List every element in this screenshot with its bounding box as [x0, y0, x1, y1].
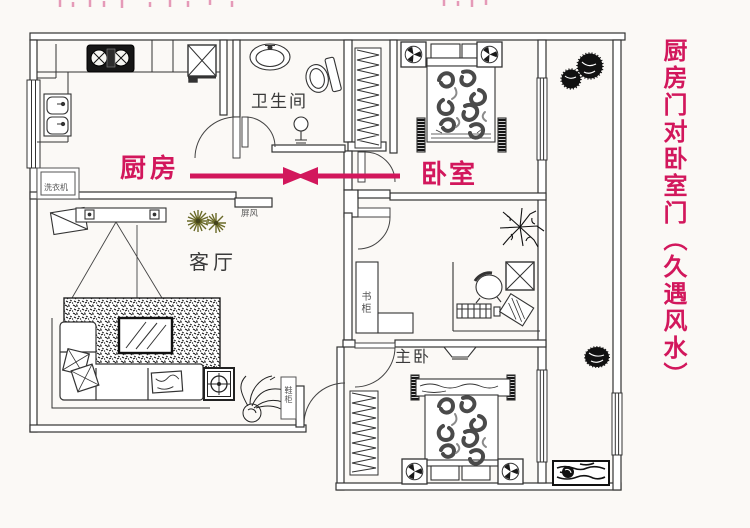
- sofa-pillow: [151, 371, 182, 393]
- bathroom-label: 卫生间: [251, 93, 308, 110]
- arrow-right-icon: [190, 167, 305, 185]
- washing-machine-label: 洗衣机: [44, 184, 68, 192]
- wall-lamp-icon: [444, 347, 476, 359]
- tv-icon: [119, 318, 172, 353]
- bedroom-label: 卧室: [421, 162, 477, 188]
- nightstand-fan-icon: [402, 459, 427, 484]
- feng-shui-arrows: [190, 167, 400, 185]
- stove-icon: [87, 45, 134, 72]
- shoe-cabinet-label: 鞋柜: [284, 386, 292, 404]
- living-room-label: 客厅: [189, 253, 237, 273]
- starburst-plant-icon: [187, 210, 226, 233]
- doormat-icon: [553, 461, 609, 485]
- kitchen-sink-icon: [44, 94, 71, 136]
- screen-cabinet-label: 屏风: [241, 209, 258, 218]
- master-bedroom-label: 主卧: [395, 350, 431, 366]
- plant-icon: [562, 54, 603, 89]
- nightstand-fan-icon: [477, 42, 502, 67]
- fridge-icon: [188, 45, 216, 82]
- end-table-icon: [204, 368, 234, 400]
- floor-plan-page: 厨房 卧室 卫生间 客厅 主卧 书柜 洗衣机 屏风 鞋柜 厨房门对卧室门（久遇风…: [0, 0, 750, 528]
- plant-icon: [585, 347, 609, 367]
- floor-plan-drawing: [0, 0, 750, 528]
- bathroom-basin-icon: [250, 44, 290, 70]
- laptop-icon: [500, 294, 534, 326]
- tv-cabinet: [76, 208, 166, 222]
- kitchen-label: 厨房: [120, 156, 180, 182]
- side-table-icon: [506, 262, 534, 290]
- desk-chair-icon: [475, 273, 502, 303]
- feng-shui-caption: 厨房门对卧室门（久遇风水）: [660, 38, 684, 418]
- walls: [30, 33, 625, 490]
- toilet-icon: [302, 57, 341, 98]
- nightstand-fan-icon: [401, 42, 426, 67]
- cropped-text-remnants: [60, 0, 486, 8]
- floor-drain-icon: [294, 117, 308, 143]
- bookcase-label: 书柜: [359, 291, 369, 315]
- nightstand-fan-icon: [498, 459, 523, 484]
